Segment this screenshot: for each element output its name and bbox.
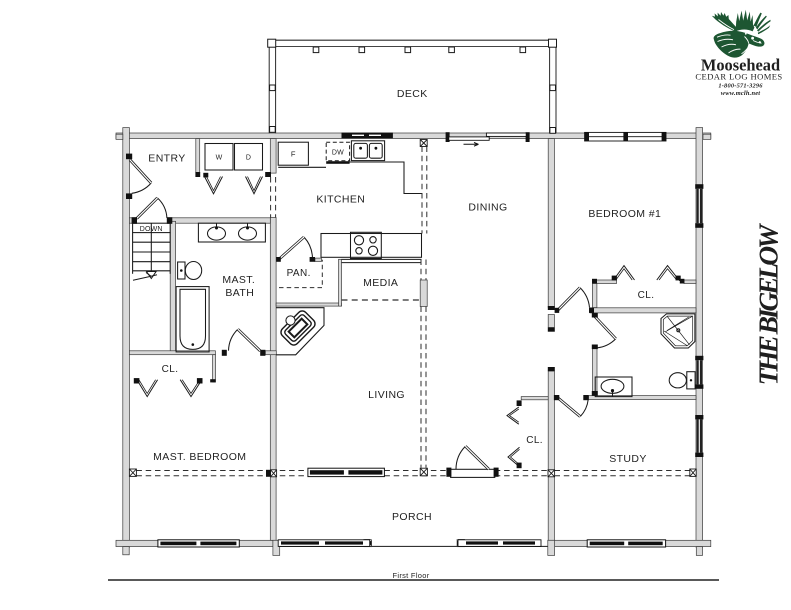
svg-text:MEDIA: MEDIA <box>363 277 398 289</box>
svg-text:1-800-571-3296: 1-800-571-3296 <box>718 83 763 90</box>
svg-text:CL.: CL. <box>638 290 655 301</box>
svg-text:DINING: DINING <box>468 201 507 213</box>
svg-text:BATH: BATH <box>225 287 254 299</box>
svg-text:ENTRY: ENTRY <box>148 152 185 164</box>
svg-text:LIVING: LIVING <box>368 389 405 401</box>
svg-text:PAN.: PAN. <box>287 268 311 279</box>
svg-text:PORCH: PORCH <box>392 511 432 523</box>
svg-text:MAST. BEDROOM: MAST. BEDROOM <box>153 451 246 463</box>
svg-text:DECK: DECK <box>397 88 428 100</box>
svg-text:KITCHEN: KITCHEN <box>316 193 365 205</box>
svg-text:W: W <box>216 154 223 161</box>
svg-text:CEDAR LOG HOMES: CEDAR LOG HOMES <box>695 71 782 81</box>
svg-text:F: F <box>291 149 296 158</box>
svg-text:BEDROOM #1: BEDROOM #1 <box>588 208 661 220</box>
svg-text:D: D <box>246 154 251 161</box>
svg-text:www.mclh.net: www.mclh.net <box>721 90 760 97</box>
svg-text:THE BIGELOW: THE BIGELOW <box>753 222 784 385</box>
svg-text:CL.: CL. <box>526 435 543 446</box>
svg-text:STUDY: STUDY <box>609 453 647 465</box>
svg-text:DOWN: DOWN <box>140 226 163 233</box>
svg-text:CL.: CL. <box>162 364 179 375</box>
svg-text:DW: DW <box>332 149 344 156</box>
svg-text:First Floor: First Floor <box>392 571 429 580</box>
svg-text:MAST.: MAST. <box>222 274 255 286</box>
